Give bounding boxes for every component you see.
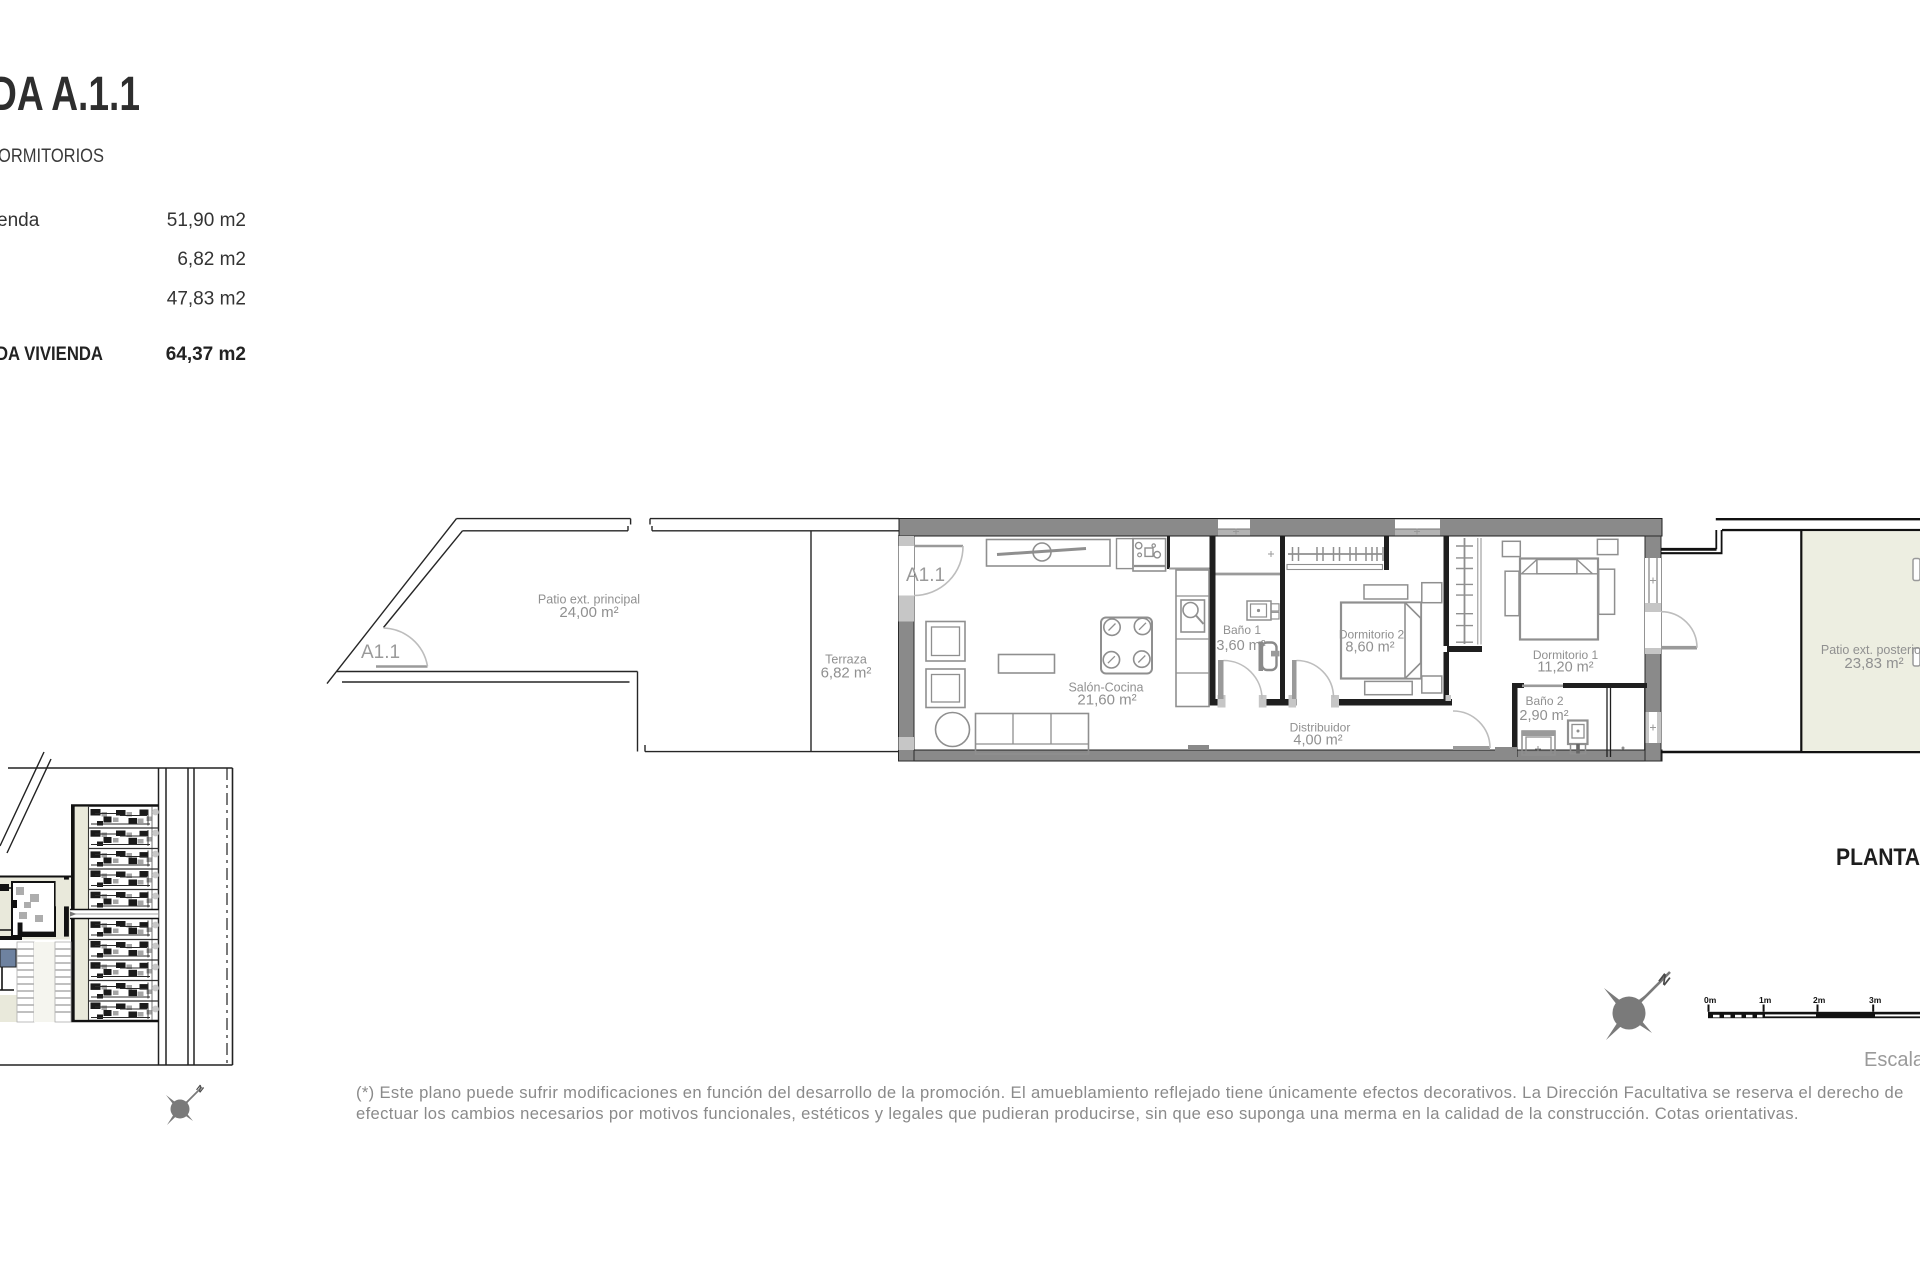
svg-text:Baño 2: Baño 2 [1525, 694, 1563, 708]
svg-text:A1.1: A1.1 [906, 565, 945, 586]
svg-text:N: N [1656, 970, 1674, 989]
svg-text:8,60 m²: 8,60 m² [1345, 640, 1394, 656]
svg-text:2,90 m²: 2,90 m² [1519, 708, 1568, 724]
svg-text:4,00 m²: 4,00 m² [1293, 733, 1342, 749]
svg-text:11,20 m²: 11,20 m² [1537, 660, 1593, 676]
svg-text:Baño 1: Baño 1 [1223, 623, 1261, 637]
svg-text:23,83 m²: 23,83 m² [1844, 655, 1903, 672]
svg-text:21,60 m²: 21,60 m² [1077, 692, 1136, 709]
svg-text:6,82 m²: 6,82 m² [821, 665, 872, 682]
svg-text:efectuar los cambios necesario: efectuar los cambios necesarios por moti… [356, 1104, 1799, 1123]
svg-text:0m: 0m [1704, 995, 1717, 1005]
svg-text:ORMITORIOS: ORMITORIOS [0, 145, 104, 167]
svg-text:2m: 2m [1813, 995, 1826, 1005]
svg-text:Escala 1:7: Escala 1:7 [1864, 1049, 1920, 1071]
svg-text:3,60 m²: 3,60 m² [1216, 638, 1265, 654]
svg-text:PLANTA: PLANTA [1836, 844, 1920, 871]
svg-text:47,83 m2: 47,83 m2 [167, 289, 246, 310]
svg-text:DA A.1.1: DA A.1.1 [0, 68, 140, 121]
svg-text:6,82 m2: 6,82 m2 [177, 249, 246, 270]
svg-text:enda: enda [0, 210, 40, 231]
svg-text:1m: 1m [1759, 995, 1772, 1005]
svg-text:51,90 m2: 51,90 m2 [167, 210, 246, 231]
svg-text:64,37 m2: 64,37 m2 [166, 344, 246, 365]
svg-text:(*) Este plano puede sufrir mo: (*) Este plano puede sufrir modificacion… [356, 1083, 1904, 1102]
svg-text:DA VIVIENDA: DA VIVIENDA [0, 344, 103, 365]
svg-text:A1.1: A1.1 [361, 642, 400, 663]
svg-text:24,00 m²: 24,00 m² [559, 604, 618, 621]
svg-text:3m: 3m [1869, 995, 1882, 1005]
